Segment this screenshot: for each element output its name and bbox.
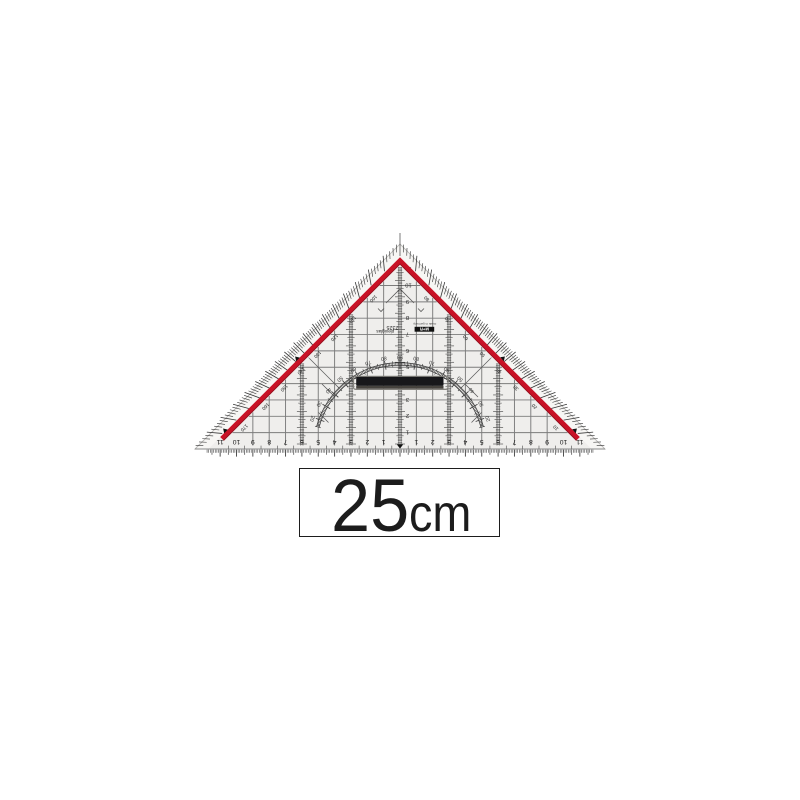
- svg-text:3: 3: [349, 438, 353, 445]
- svg-text:made in germany: made in germany: [413, 322, 437, 326]
- svg-text:3: 3: [406, 396, 409, 402]
- svg-text:plexiglas: plexiglas: [376, 329, 395, 334]
- svg-text:9: 9: [251, 438, 255, 445]
- svg-text:90: 90: [397, 354, 403, 360]
- svg-text:9: 9: [406, 298, 409, 304]
- svg-text:1: 1: [382, 438, 386, 445]
- svg-text:4: 4: [463, 438, 467, 445]
- svg-text:2: 2: [406, 412, 409, 418]
- svg-text:7: 7: [406, 330, 409, 336]
- svg-text:8: 8: [267, 438, 271, 445]
- svg-text:5: 5: [480, 438, 484, 445]
- svg-text:11: 11: [216, 438, 223, 445]
- svg-text:2: 2: [365, 438, 369, 445]
- svg-text:M+R: M+R: [419, 327, 429, 332]
- svg-text:6: 6: [300, 438, 304, 445]
- svg-text:5: 5: [316, 438, 320, 445]
- svg-text:7: 7: [512, 438, 516, 445]
- svg-text:6: 6: [496, 438, 500, 445]
- svg-text:8: 8: [529, 438, 533, 445]
- svg-text:10: 10: [405, 281, 411, 287]
- svg-text:10: 10: [560, 438, 568, 445]
- svg-text:10: 10: [233, 438, 241, 445]
- svg-text:6: 6: [406, 347, 409, 353]
- svg-text:1: 1: [406, 429, 409, 435]
- svg-text:3: 3: [447, 438, 451, 445]
- svg-text:2: 2: [431, 438, 435, 445]
- svg-text:9: 9: [545, 438, 549, 445]
- svg-text:80: 80: [413, 355, 420, 362]
- svg-text:7: 7: [283, 438, 287, 445]
- svg-text:8: 8: [406, 314, 409, 320]
- svg-text:4: 4: [332, 438, 336, 445]
- svg-text:80: 80: [380, 355, 387, 362]
- svg-text:1: 1: [414, 438, 418, 445]
- svg-text:11: 11: [576, 438, 583, 445]
